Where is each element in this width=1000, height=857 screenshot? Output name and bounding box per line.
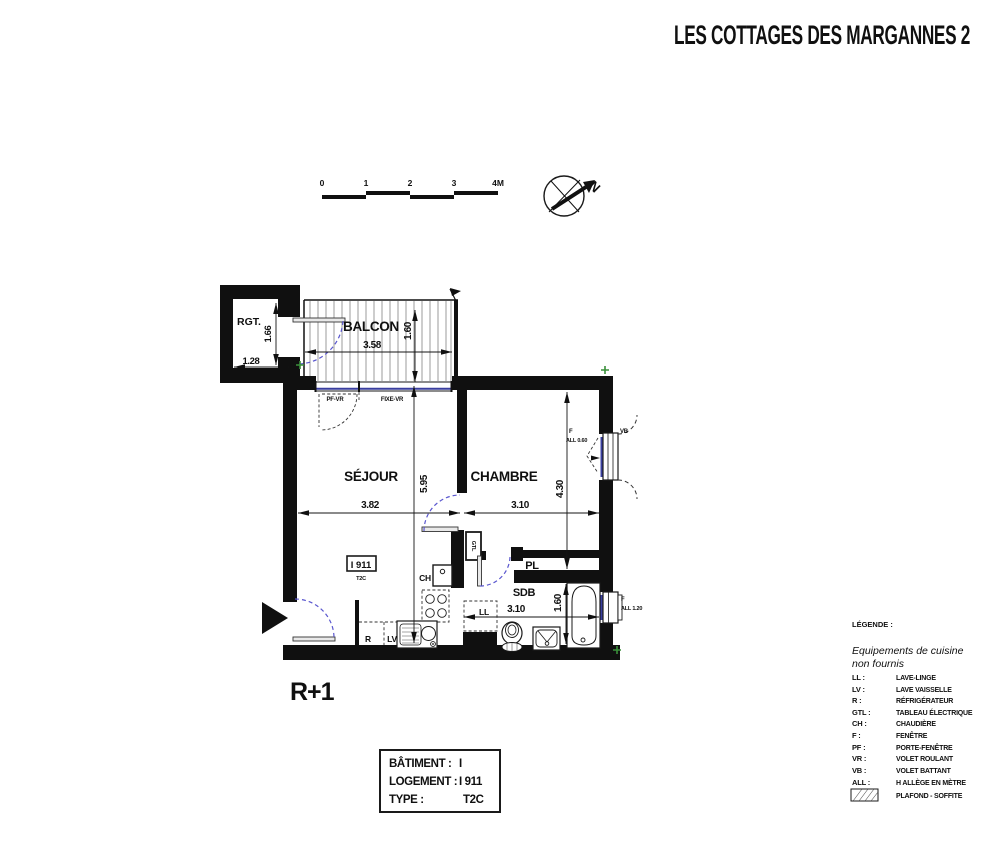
floor-plan: 1.66 1.28 3.58 1.60 3.82 3.10 5.95 4.30 … bbox=[220, 285, 642, 706]
label-ll: LL bbox=[479, 607, 489, 617]
label-chambre: CHAMBRE bbox=[471, 469, 538, 484]
scale-tick-3: 3 bbox=[452, 178, 457, 188]
legend-key-pf: PF : bbox=[852, 743, 865, 752]
label-pf-vr: PF-VR bbox=[326, 397, 344, 403]
scale-bar: 0 1 2 3 4M bbox=[320, 178, 504, 199]
dim-chambre-w: 3.10 bbox=[511, 500, 530, 511]
legend-title: LÉGENDE : bbox=[852, 620, 893, 629]
scale-tick-1: 1 bbox=[364, 178, 369, 188]
label-balcon: BALCON bbox=[343, 319, 399, 334]
label-gtl: GTL bbox=[470, 541, 476, 552]
dim-balcon-d: 1.60 bbox=[403, 321, 414, 340]
legend-val-f: FENÊTRE bbox=[896, 731, 928, 740]
washbasin bbox=[533, 627, 560, 650]
label-pl: PL bbox=[525, 560, 539, 572]
legend-val-pf: PORTE-FENÊTRE bbox=[896, 743, 953, 752]
table-row1-value: I bbox=[459, 758, 462, 770]
legend-val-r: RÉFRIGÉRATEUR bbox=[896, 696, 953, 705]
sejour-door-leaf bbox=[422, 527, 458, 532]
info-table: BÂTIMENT : I LOGEMENT : I 911 TYPE : T2C bbox=[380, 750, 500, 812]
legend-val-vb: VOLET BATTANT bbox=[896, 768, 952, 775]
legend-val-vr: VOLET ROULANT bbox=[896, 756, 954, 763]
floor-plan-sheet: LES COTTAGES DES MARGANNES 2 0 1 2 3 4M … bbox=[0, 0, 1000, 857]
label-vb: VB bbox=[620, 429, 629, 435]
label-sdb-window-sill: ALL 1.20 bbox=[621, 606, 642, 612]
balcony-window bbox=[315, 381, 452, 430]
boiler-box bbox=[433, 565, 452, 586]
unit-id: I 911 bbox=[351, 560, 372, 571]
legend-key-gtl: GTL : bbox=[852, 708, 870, 717]
legend-key-ch: CH : bbox=[852, 719, 867, 728]
sheet-title: LES COTTAGES DES MARGANNES 2 bbox=[674, 20, 970, 50]
legend-val-ll: LAVE-LINGE bbox=[896, 675, 936, 682]
legend-key-all: ALL : bbox=[852, 778, 870, 787]
label-lv: LV bbox=[387, 634, 397, 644]
label-sdb: SDB bbox=[513, 587, 536, 599]
north-label: N bbox=[586, 178, 603, 195]
dim-sejour-h: 5.95 bbox=[419, 474, 430, 493]
legend-key-ll: LL : bbox=[852, 673, 865, 682]
legend-val-plafond: PLAFOND - SOFFITE bbox=[896, 793, 963, 800]
label-chambre-window-f: F bbox=[569, 429, 573, 435]
label-fixe-vr: FIXE-VR bbox=[381, 397, 404, 403]
room-rgt bbox=[220, 285, 300, 383]
dim-rgt-w: 1.28 bbox=[243, 356, 260, 367]
legend-key-vr: VR : bbox=[852, 754, 866, 763]
legend-val-gtl: TABLEAU ÉLECTRIQUE bbox=[896, 708, 973, 717]
label-r: R bbox=[365, 634, 371, 644]
dim-rgt-h: 1.66 bbox=[263, 325, 274, 342]
cooktop bbox=[422, 590, 449, 622]
legend-key-r: R : bbox=[852, 696, 861, 705]
legend-key-f: F : bbox=[852, 731, 861, 740]
dim-sdb-h: 1.60 bbox=[553, 593, 564, 612]
bathtub bbox=[567, 583, 600, 648]
legend-note-2: non fournis bbox=[852, 658, 905, 670]
toilet bbox=[502, 622, 522, 652]
scale-tick-4: 4M bbox=[492, 178, 504, 188]
rgt-door-leaf bbox=[293, 318, 345, 322]
legend: LÉGENDE : Equipements de cuisine non fou… bbox=[851, 620, 973, 801]
unit-tag: I 911 T2C bbox=[347, 556, 376, 582]
legend-key-vb: VB : bbox=[852, 766, 866, 775]
label-sejour: SÉJOUR bbox=[344, 469, 398, 484]
label-rgt: RGT. bbox=[237, 316, 261, 328]
label-ch: CH bbox=[419, 573, 431, 583]
unit-type: T2C bbox=[356, 576, 366, 582]
dim-chambre-h: 4.30 bbox=[555, 479, 566, 498]
sdb-door-leaf bbox=[478, 556, 482, 586]
entrance-door-leaf bbox=[293, 637, 335, 641]
dim-sejour-w: 3.82 bbox=[361, 500, 380, 511]
kitchen-sink bbox=[397, 621, 437, 648]
legend-val-lv: LAVE VAISSELLE bbox=[896, 687, 952, 694]
flag-icon bbox=[450, 288, 461, 301]
scale-tick-2: 2 bbox=[408, 178, 413, 188]
legend-key-lv: LV : bbox=[852, 685, 865, 694]
balcony bbox=[304, 288, 461, 382]
floor-label: R+1 bbox=[290, 678, 335, 706]
table-row2-value: I 911 bbox=[459, 776, 483, 788]
north-compass: N bbox=[544, 176, 603, 216]
plan-canvas: LES COTTAGES DES MARGANNES 2 0 1 2 3 4M … bbox=[0, 0, 1000, 857]
scale-tick-0: 0 bbox=[320, 178, 325, 188]
table-row3-value: T2C bbox=[463, 794, 484, 806]
legend-note-1: Equipements de cuisine bbox=[852, 645, 964, 657]
label-sdb-window-f: F bbox=[621, 597, 625, 603]
label-chambre-window-sill: ALL 0.60 bbox=[566, 438, 587, 444]
table-row1-label: BÂTIMENT : bbox=[389, 757, 451, 770]
table-row3-label: TYPE : bbox=[389, 794, 424, 806]
dim-sdb-w: 3.10 bbox=[507, 604, 526, 615]
legend-val-ch: CHAUDIÈRE bbox=[896, 719, 936, 728]
legend-val-all: H ALLÈGE EN MÈTRE bbox=[896, 778, 966, 787]
dim-balcon-w: 3.58 bbox=[363, 340, 382, 351]
hatch-swatch-icon bbox=[851, 789, 878, 801]
entrance-arrow bbox=[262, 602, 288, 634]
table-row2-label: LOGEMENT : bbox=[389, 776, 457, 788]
